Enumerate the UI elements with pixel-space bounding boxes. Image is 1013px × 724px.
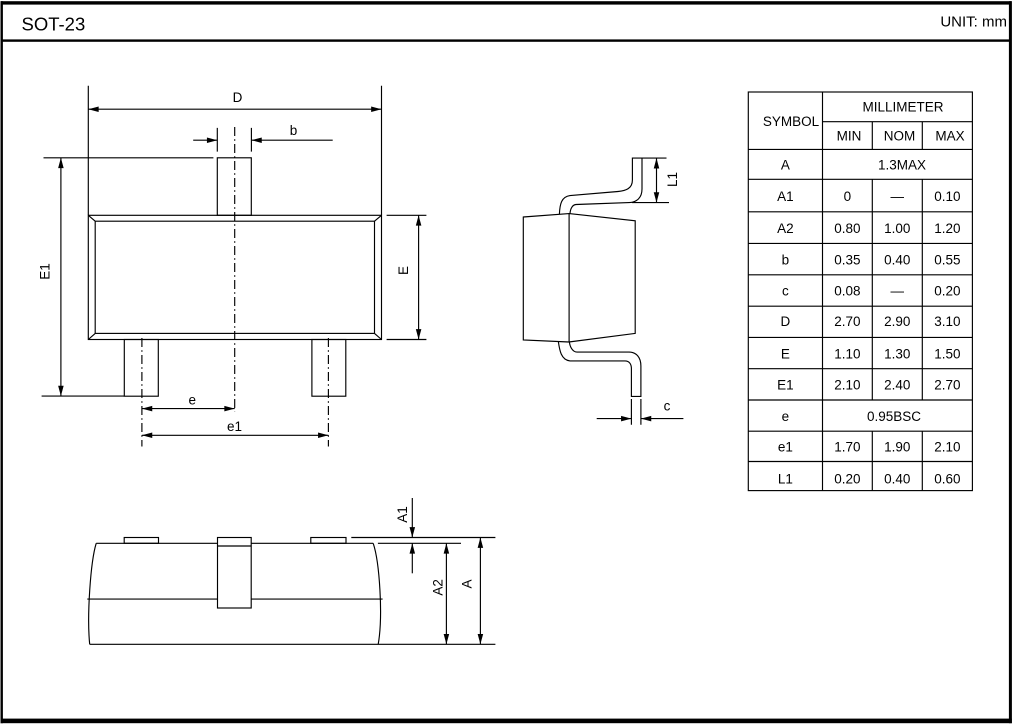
svg-text:e1: e1 xyxy=(778,440,793,455)
svg-text:0.40: 0.40 xyxy=(884,252,910,267)
svg-text:2.10: 2.10 xyxy=(834,378,860,393)
svg-text:D: D xyxy=(781,314,791,329)
svg-text:c: c xyxy=(664,399,671,414)
svg-text:A: A xyxy=(459,579,474,588)
svg-text:0.20: 0.20 xyxy=(834,471,860,486)
svg-text:MILLIMETER: MILLIMETER xyxy=(862,100,943,115)
svg-text:2.70: 2.70 xyxy=(934,378,960,393)
svg-text:1.50: 1.50 xyxy=(934,346,960,361)
svg-text:UNIT: mm: UNIT: mm xyxy=(940,14,1007,31)
svg-text:SYMBOL: SYMBOL xyxy=(763,114,820,129)
svg-text:E: E xyxy=(781,346,790,361)
svg-text:1.30: 1.30 xyxy=(884,346,910,361)
svg-text:2.10: 2.10 xyxy=(934,440,960,455)
svg-text:L1: L1 xyxy=(665,172,680,187)
svg-text:c: c xyxy=(782,284,789,299)
svg-text:0.95BSC: 0.95BSC xyxy=(867,409,921,424)
svg-text:E: E xyxy=(396,266,411,275)
svg-text:NOM: NOM xyxy=(884,129,916,144)
svg-text:MIN: MIN xyxy=(837,129,862,144)
svg-text:MAX: MAX xyxy=(935,129,964,144)
svg-text:0.35: 0.35 xyxy=(834,252,860,267)
svg-text:0.55: 0.55 xyxy=(934,252,960,267)
svg-text:SOT-23: SOT-23 xyxy=(22,14,86,35)
svg-text:3.10: 3.10 xyxy=(934,314,960,329)
svg-text:2.90: 2.90 xyxy=(884,314,910,329)
svg-text:e: e xyxy=(189,393,197,408)
svg-text:0.80: 0.80 xyxy=(834,221,860,236)
svg-text:1.00: 1.00 xyxy=(884,221,910,236)
svg-text:0.60: 0.60 xyxy=(934,471,960,486)
svg-text:0: 0 xyxy=(844,189,852,204)
svg-text:A1: A1 xyxy=(395,506,410,523)
svg-text:1.90: 1.90 xyxy=(884,440,910,455)
svg-text:0.08: 0.08 xyxy=(834,284,860,299)
svg-text:e: e xyxy=(782,409,790,424)
svg-text:2.70: 2.70 xyxy=(834,314,860,329)
svg-text:A1: A1 xyxy=(777,189,794,204)
svg-text:D: D xyxy=(233,90,243,105)
svg-text:e1: e1 xyxy=(227,419,242,434)
svg-text:E1: E1 xyxy=(777,378,794,393)
svg-text:—: — xyxy=(891,189,905,204)
svg-text:A2: A2 xyxy=(777,221,794,236)
svg-text:1.3MAX: 1.3MAX xyxy=(878,158,926,173)
svg-text:0.10: 0.10 xyxy=(934,189,960,204)
svg-text:2.40: 2.40 xyxy=(884,378,910,393)
svg-text:—: — xyxy=(891,284,905,299)
svg-text:E1: E1 xyxy=(37,263,52,280)
svg-text:A2: A2 xyxy=(431,579,446,596)
svg-text:0.20: 0.20 xyxy=(934,284,960,299)
svg-text:1.70: 1.70 xyxy=(834,440,860,455)
svg-text:0.40: 0.40 xyxy=(884,471,910,486)
svg-text:b: b xyxy=(782,252,790,267)
svg-text:b: b xyxy=(290,123,298,138)
svg-text:1.10: 1.10 xyxy=(834,346,860,361)
svg-text:A: A xyxy=(781,158,790,173)
svg-text:L1: L1 xyxy=(778,471,793,486)
svg-text:1.20: 1.20 xyxy=(934,221,960,236)
